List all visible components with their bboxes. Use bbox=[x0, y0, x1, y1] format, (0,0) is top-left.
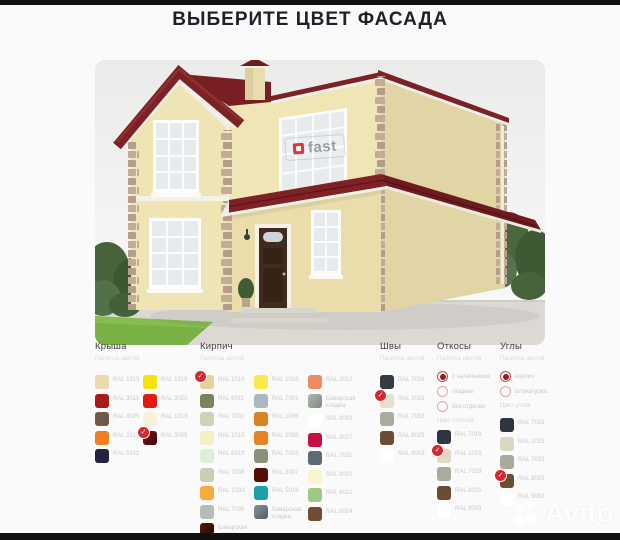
swatch-group: RAL 7016RAL 1015✓RAL 7033RAL 8025RAL 900… bbox=[380, 375, 436, 468]
avito-logo-icon bbox=[512, 500, 542, 528]
color-swatch[interactable] bbox=[437, 430, 451, 444]
swatch-row: RAL 3020 bbox=[143, 394, 191, 408]
swatch-row: RAL 3005✓ bbox=[143, 431, 191, 445]
swatch-row: RAL 7001 bbox=[254, 394, 308, 408]
swatch-row: RAL 6021 bbox=[308, 488, 362, 502]
swatch-groups: RAL 1015RAL 3011RAL 8025RAL 2011RAL 5011… bbox=[95, 375, 191, 468]
swatch-label: RAL 9003 bbox=[398, 451, 424, 458]
swatch-row: RAL 7035 bbox=[200, 505, 254, 519]
color-swatch[interactable] bbox=[200, 505, 214, 519]
swatch-label: RAL 2011 bbox=[113, 433, 139, 440]
swatch-label: RAL 1015 bbox=[113, 377, 139, 384]
swatch-group: RAL 1014✓RAL 6011RAL 7032RAL 1015RAL 601… bbox=[200, 375, 254, 540]
palette-column-seams: ШвыПалитра цветовRAL 7016RAL 1015✓RAL 70… bbox=[380, 341, 436, 468]
color-swatch[interactable] bbox=[437, 467, 451, 481]
radio-icon[interactable] bbox=[500, 386, 511, 397]
swatch-label: RAL 9001 bbox=[326, 472, 352, 479]
radio-option[interactable]: без отделки bbox=[437, 401, 493, 412]
color-swatch[interactable] bbox=[200, 486, 214, 500]
swatch-row: RAL 5011 bbox=[95, 449, 143, 463]
swatch-groups: RAL 7016RAL 1015✓RAL 7033RAL 8025RAL 900… bbox=[380, 375, 436, 468]
swatch-label: RAL 7038 bbox=[218, 470, 244, 477]
selected-check-icon: ✓ bbox=[195, 371, 206, 382]
lower-left-window bbox=[147, 218, 203, 293]
swatch-label: RAL 7003 bbox=[272, 451, 298, 458]
palette-column-corners: УглыПалитра цветовкирпичштукатуркаЦвет у… bbox=[500, 341, 556, 511]
palette-column-roof: КрышаПалитра цветовRAL 1015RAL 3011RAL 8… bbox=[95, 341, 191, 468]
color-swatch[interactable] bbox=[200, 394, 214, 408]
swatch-label: RAL 6021 bbox=[326, 490, 352, 497]
swatch-label: RAL 1006 bbox=[272, 414, 298, 421]
swatch-row: RAL 1006 bbox=[254, 412, 308, 426]
page-title: ВЫБЕРИТЕ ЦВЕТ ФАСАДА bbox=[0, 9, 620, 31]
color-swatch[interactable] bbox=[437, 486, 451, 500]
color-swatch[interactable] bbox=[380, 431, 394, 445]
color-swatch[interactable] bbox=[500, 455, 514, 469]
color-swatch[interactable] bbox=[308, 451, 322, 465]
fast-logo-text: fast bbox=[307, 137, 337, 156]
color-swatch[interactable] bbox=[380, 449, 394, 463]
top-black-bar bbox=[0, 0, 620, 5]
swatch-group: RAL 1016RAL 7001RAL 1006RAL 2008RAL 7003… bbox=[254, 375, 308, 540]
swatch-label: RAL 1016 bbox=[272, 377, 298, 384]
color-swatch[interactable] bbox=[308, 433, 322, 447]
swatch-groups: RAL 1014✓RAL 6011RAL 7032RAL 1015RAL 601… bbox=[200, 375, 362, 540]
swatch-label: RAL 7035 bbox=[218, 507, 244, 514]
swatch-label: RAL 1018 bbox=[161, 377, 187, 384]
radio-selected-icon[interactable] bbox=[500, 371, 511, 382]
swatch-label: RAL 8025 bbox=[113, 414, 139, 421]
radio-option[interactable]: с наличником bbox=[437, 371, 493, 382]
swatch-label: RAL 3007 bbox=[272, 470, 298, 477]
radio-label: штукатурка bbox=[515, 389, 547, 395]
color-swatch[interactable] bbox=[254, 431, 268, 445]
column-note: Цвет откосов bbox=[437, 418, 493, 424]
color-swatch[interactable] bbox=[500, 437, 514, 451]
radio-option[interactable]: гладкие bbox=[437, 386, 493, 397]
color-swatch[interactable] bbox=[308, 488, 322, 502]
swatch-row: RAL 1018 bbox=[143, 375, 191, 389]
color-swatch[interactable] bbox=[95, 449, 109, 463]
radio-label: без отделки bbox=[452, 404, 485, 410]
color-swatch[interactable] bbox=[308, 414, 322, 428]
swatch-row: RAL 7016 bbox=[500, 418, 556, 432]
color-swatch[interactable] bbox=[254, 486, 268, 500]
color-swatch[interactable] bbox=[95, 412, 109, 426]
color-swatch[interactable] bbox=[200, 431, 214, 445]
swatch-label: RAL 8025 bbox=[398, 433, 424, 440]
color-swatch[interactable] bbox=[308, 394, 322, 408]
swatch-label: RAL 7032 bbox=[218, 414, 244, 421]
swatch-row: RAL 7033 bbox=[437, 467, 493, 481]
column-subtitle: Палитра цветов bbox=[500, 356, 556, 363]
swatch-row: RAL 2011 bbox=[95, 431, 143, 445]
color-swatch[interactable] bbox=[95, 431, 109, 445]
swatch-row: RAL 1015 bbox=[95, 375, 143, 389]
swatch-label: RAL 6019 bbox=[218, 451, 244, 458]
swatch-group: RAL 7016RAL 1015✓RAL 7033RAL 8025RAL 900… bbox=[437, 430, 493, 523]
swatch-label: Баварскаякладка bbox=[326, 396, 355, 410]
color-swatch[interactable] bbox=[95, 394, 109, 408]
swatch-row: RAL 7016 bbox=[437, 430, 493, 444]
swatch-row: RAL 7032 bbox=[200, 412, 254, 426]
color-swatch[interactable] bbox=[437, 504, 451, 518]
swatch-label: RAL 1015 bbox=[398, 396, 424, 403]
swatch-row: RAL 2008 bbox=[254, 431, 308, 445]
swatch-group: RAL 1018RAL 3020RAL 1013RAL 3005✓ bbox=[143, 375, 191, 468]
swatch-label: RAL 3020 bbox=[161, 396, 187, 403]
column-label-corners: Углы bbox=[500, 341, 556, 352]
swatch-label: RAL 3005 bbox=[161, 433, 187, 440]
selected-check-icon: ✓ bbox=[138, 427, 149, 438]
color-swatch[interactable] bbox=[200, 449, 214, 463]
swatch-row: RAL 3027 bbox=[308, 433, 362, 447]
column-subtitle: Палитра цветов bbox=[95, 356, 191, 363]
house-render bbox=[95, 60, 545, 345]
color-swatch[interactable] bbox=[95, 375, 109, 389]
color-swatch[interactable] bbox=[308, 470, 322, 484]
swatch-label: RAL 2008 bbox=[272, 433, 298, 440]
swatch-label: RAL 7016 bbox=[455, 432, 481, 439]
radio-icon[interactable] bbox=[437, 386, 448, 397]
radio-icon[interactable] bbox=[437, 401, 448, 412]
swatch-label: RAL 7031 bbox=[326, 453, 352, 460]
upper-left-window bbox=[151, 120, 201, 197]
swatch-row: RAL 7038 bbox=[200, 468, 254, 482]
color-swatch[interactable] bbox=[380, 412, 394, 426]
swatch-row: RAL 3011 bbox=[95, 394, 143, 408]
avito-logo-text: Avito bbox=[545, 498, 614, 529]
swatch-row: RAL 1016 bbox=[254, 375, 308, 389]
swatch-groups: RAL 7016RAL 1015✓RAL 7033RAL 8025RAL 900… bbox=[437, 430, 493, 523]
swatch-group: RAL 7016RAL 1015RAL 7033RAL 8025✓RAL 900… bbox=[500, 418, 556, 511]
column-label-slopes: Откосы bbox=[437, 341, 493, 352]
swatch-label: RAL 5011 bbox=[113, 451, 139, 458]
swatch-row: RAL 1015 bbox=[200, 431, 254, 445]
swatch-group: RAL 1015RAL 3011RAL 8025RAL 2011RAL 5011 bbox=[95, 375, 143, 468]
swatch-row: RAL 7016 bbox=[380, 375, 436, 389]
radio-group-corners: кирпичштукатурка bbox=[500, 371, 556, 397]
swatch-row: RAL 9003 bbox=[380, 449, 436, 463]
swatch-row: RAL 1015 bbox=[500, 437, 556, 451]
swatch-row: RAL 1014✓ bbox=[200, 375, 254, 389]
column-label-seams: Швы bbox=[380, 341, 436, 352]
column-label-brick: Кирпич bbox=[200, 341, 362, 352]
color-swatch[interactable] bbox=[254, 468, 268, 482]
porch-steps bbox=[231, 308, 327, 323]
color-swatch[interactable] bbox=[254, 375, 268, 389]
page: ВЫБЕРИТЕ ЦВЕТ ФАСАДА bbox=[0, 0, 620, 540]
swatch-label: RAL 5018 bbox=[272, 488, 298, 495]
swatch-label: RAL 9003 bbox=[455, 506, 481, 513]
bottom-black-bar bbox=[0, 533, 620, 540]
swatch-label: RAL 2012 bbox=[326, 377, 352, 384]
selected-check-icon: ✓ bbox=[375, 390, 386, 401]
house-preview-card: fast bbox=[95, 60, 545, 345]
color-swatch[interactable] bbox=[200, 468, 214, 482]
swatch-row: RAL 8025 bbox=[437, 486, 493, 500]
swatch-row: RAL 8025✓ bbox=[500, 474, 556, 488]
selected-check-icon: ✓ bbox=[495, 470, 506, 481]
column-subtitle: Палитра цветов bbox=[380, 356, 436, 363]
swatch-row: RAL 5018 bbox=[254, 486, 308, 500]
radio-selected-icon[interactable] bbox=[437, 371, 448, 382]
swatch-row: Баварскаякладка bbox=[308, 394, 362, 410]
radio-option[interactable]: кирпич bbox=[500, 371, 556, 382]
swatch-row: RAL 9003 bbox=[308, 414, 362, 428]
color-swatch[interactable] bbox=[254, 505, 268, 519]
radio-label: кирпич bbox=[515, 374, 534, 380]
swatch-row: RAL 6011 bbox=[200, 394, 254, 408]
swatch-label: RAL 8025 bbox=[518, 476, 544, 483]
swatch-row: RAL 8025 bbox=[380, 431, 436, 445]
ground-floor-window bbox=[309, 210, 343, 279]
color-swatch[interactable] bbox=[143, 412, 157, 426]
swatch-label: RAL 1015 bbox=[218, 433, 244, 440]
column-subtitle: Палитра цветов bbox=[437, 356, 493, 363]
swatch-group: RAL 2012БаварскаякладкаRAL 9003RAL 3027R… bbox=[308, 375, 362, 540]
swatch-row: RAL 1015✓ bbox=[437, 449, 493, 463]
color-swatch[interactable] bbox=[254, 449, 268, 463]
swatch-row: RAL 7033 bbox=[380, 412, 436, 426]
radio-option[interactable]: штукатурка bbox=[500, 386, 556, 397]
swatch-row: RAL 6019 bbox=[200, 449, 254, 463]
column-label-roof: Крыша bbox=[95, 341, 191, 352]
column-subtitle: Палитра цветов bbox=[200, 356, 362, 363]
color-swatch[interactable] bbox=[380, 375, 394, 389]
swatch-label: RAL 8024 bbox=[326, 509, 352, 516]
selected-check-icon: ✓ bbox=[432, 445, 443, 456]
swatch-row: RAL 8024 bbox=[308, 507, 362, 521]
swatch-label: RAL 1015 bbox=[455, 451, 481, 458]
swatch-label: RAL 7016 bbox=[398, 377, 424, 384]
swatch-label: RAL 1033 bbox=[218, 488, 244, 495]
swatch-label: RAL 8025 bbox=[455, 488, 481, 495]
swatch-label: RAL 1014 bbox=[218, 377, 244, 384]
swatch-row: RAL 7003 bbox=[254, 449, 308, 463]
color-swatch[interactable] bbox=[200, 412, 214, 426]
swatch-label: RAL 1015 bbox=[518, 439, 544, 446]
radio-label: с наличником bbox=[452, 374, 490, 380]
swatch-label: RAL 7033 bbox=[518, 457, 544, 464]
swatch-row: Баварскаякладка bbox=[254, 505, 308, 521]
fast-logo-icon bbox=[293, 143, 305, 155]
swatch-label: Баварскаякладка bbox=[272, 507, 301, 521]
swatch-row: RAL 7033 bbox=[500, 455, 556, 469]
swatch-label: RAL 7033 bbox=[455, 469, 481, 476]
swatch-row: RAL 1033 bbox=[200, 486, 254, 500]
palette-column-slopes: ОткосыПалитра цветовс наличникомгладкиеб… bbox=[437, 341, 493, 523]
swatch-label: RAL 6011 bbox=[218, 396, 244, 403]
color-swatch[interactable] bbox=[308, 507, 322, 521]
swatch-label: RAL 7033 bbox=[398, 414, 424, 421]
color-swatch[interactable] bbox=[254, 394, 268, 408]
radio-label: гладкие bbox=[452, 389, 474, 395]
swatch-groups: RAL 7016RAL 1015RAL 7033RAL 8025✓RAL 900… bbox=[500, 418, 556, 511]
front-door bbox=[259, 228, 287, 310]
swatch-row: RAL 3007 bbox=[254, 468, 308, 482]
column-note: Цвет углов bbox=[500, 403, 556, 409]
swatch-label: RAL 7016 bbox=[518, 420, 544, 427]
swatch-row: RAL 9001 bbox=[308, 470, 362, 484]
swatch-row: RAL 1013 bbox=[143, 412, 191, 426]
swatch-row: RAL 9003 bbox=[437, 504, 493, 518]
swatch-row: RAL 7031 bbox=[308, 451, 362, 465]
color-swatch[interactable] bbox=[254, 412, 268, 426]
color-swatch[interactable] bbox=[308, 375, 322, 389]
swatch-label: RAL 3027 bbox=[326, 435, 352, 442]
swatch-label: RAL 3011 bbox=[113, 396, 139, 403]
color-swatch[interactable] bbox=[143, 375, 157, 389]
palette-column-brick: КирпичПалитра цветовRAL 1014✓RAL 6011RAL… bbox=[200, 341, 362, 540]
color-swatch[interactable] bbox=[500, 418, 514, 432]
avito-watermark: Avito bbox=[512, 498, 614, 529]
swatch-row: RAL 8025 bbox=[95, 412, 143, 426]
radio-group-slopes: с наличникомгладкиебез отделки bbox=[437, 371, 493, 412]
swatch-label: RAL 9003 bbox=[326, 416, 352, 423]
swatch-row: RAL 1015✓ bbox=[380, 394, 436, 408]
swatch-label: RAL 7001 bbox=[272, 396, 298, 403]
swatch-row: RAL 2012 bbox=[308, 375, 362, 389]
swatch-label: RAL 1013 bbox=[161, 414, 187, 421]
color-swatch[interactable] bbox=[143, 394, 157, 408]
photo-watermark: fast bbox=[284, 134, 345, 161]
